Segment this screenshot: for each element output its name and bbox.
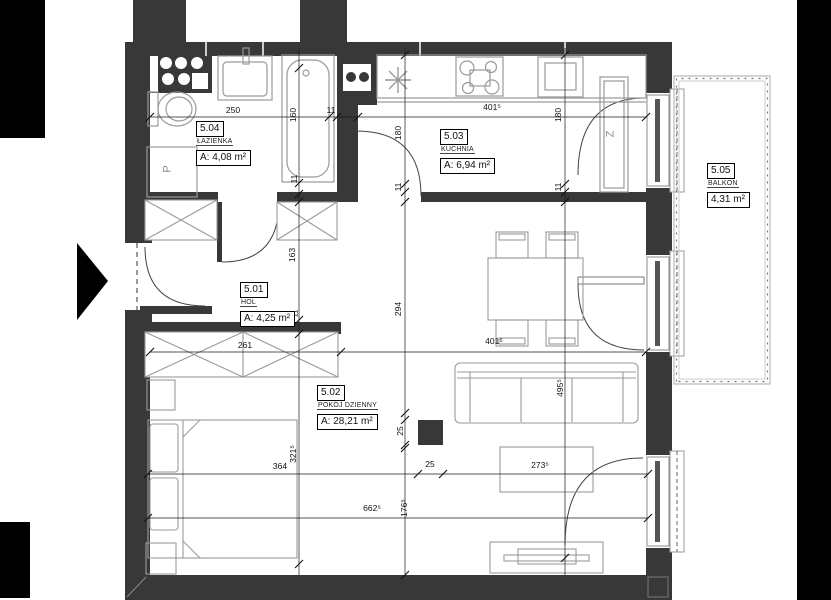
room-number: 5.05 <box>707 163 735 179</box>
column <box>418 420 443 445</box>
balcony-railing <box>674 76 770 384</box>
room-name: ŁAZIENKA <box>196 138 233 146</box>
kitchen-fixtures <box>377 55 646 192</box>
dim-25-v: 25 <box>395 409 405 453</box>
room-number: 5.02 <box>317 385 345 401</box>
dim-250: 250 <box>211 105 255 115</box>
dim-294: 294 <box>393 287 403 331</box>
dim-163: 163 <box>287 233 297 277</box>
room-number: 5.04 <box>196 121 224 137</box>
fridge-label: Z <box>604 131 616 138</box>
dim-11-b: 11 <box>289 157 299 201</box>
dim-401-5-b: 401⁵ <box>472 336 516 346</box>
room-number: 5.03 <box>440 129 468 145</box>
dim-662-5: 662⁵ <box>350 503 394 513</box>
dim-261: 261 <box>223 340 267 350</box>
dim-25-h: 25 <box>408 459 452 469</box>
dim-176-5: 176⁵ <box>399 486 409 530</box>
room-name: KUCHNIA <box>440 146 475 154</box>
dim-495-5: 495⁵ <box>555 366 565 410</box>
room-label-pokoj-dzienny: 5.02 POKÓJ DZIENNY A: 28,21 m² <box>317 382 378 430</box>
room-area: A: 4,08 m² <box>196 150 251 166</box>
dim-401-5-a: 401⁵ <box>470 102 514 112</box>
dim-180-b: 180 <box>553 93 563 137</box>
entrance-arrow <box>77 243 108 320</box>
plan-drawing <box>0 0 831 600</box>
dim-180-a: 180 <box>393 111 403 155</box>
boiler-asterisk-icon <box>385 67 411 93</box>
room-label-kuchnia: 5.03 KUCHNIA A: 6,94 m² <box>440 126 495 174</box>
room-area: 4,31 m² <box>707 192 750 208</box>
dim-11-a: 11 <box>309 105 353 115</box>
dim-11-c: 11 <box>393 165 403 209</box>
balcony-windows <box>645 89 684 552</box>
floor-plan: 5.04 ŁAZIENKA A: 4,08 m² 5.03 KUCHNIA A:… <box>0 0 831 600</box>
page-frame-blocks <box>0 0 831 600</box>
room-name: BALKON <box>707 180 739 188</box>
duct-shaft <box>343 64 371 91</box>
room-name: HOL <box>240 299 257 307</box>
hol-wardrobes <box>145 200 337 240</box>
washing-machine-label: P <box>162 165 174 172</box>
room-label-lazienka: 5.04 ŁAZIENKA A: 4,08 m² <box>196 118 251 166</box>
dim-11-d: 11 <box>553 165 563 209</box>
room-label-balkon: 5.05 BALKON 4,31 m² <box>707 160 750 208</box>
room-area: A: 6,94 m² <box>440 158 495 174</box>
dim-364: 364 <box>258 461 302 471</box>
room-number: 5.01 <box>240 282 268 298</box>
room-area: A: 4,25 m² <box>240 311 295 327</box>
room-name: POKÓJ DZIENNY <box>317 402 378 410</box>
room-label-hol: 5.01 HOL A: 4,25 m² <box>240 279 295 327</box>
room-area: A: 28,21 m² <box>317 414 378 430</box>
dim-273-5: 273⁵ <box>518 460 562 470</box>
dim-160: 160 <box>288 93 298 137</box>
